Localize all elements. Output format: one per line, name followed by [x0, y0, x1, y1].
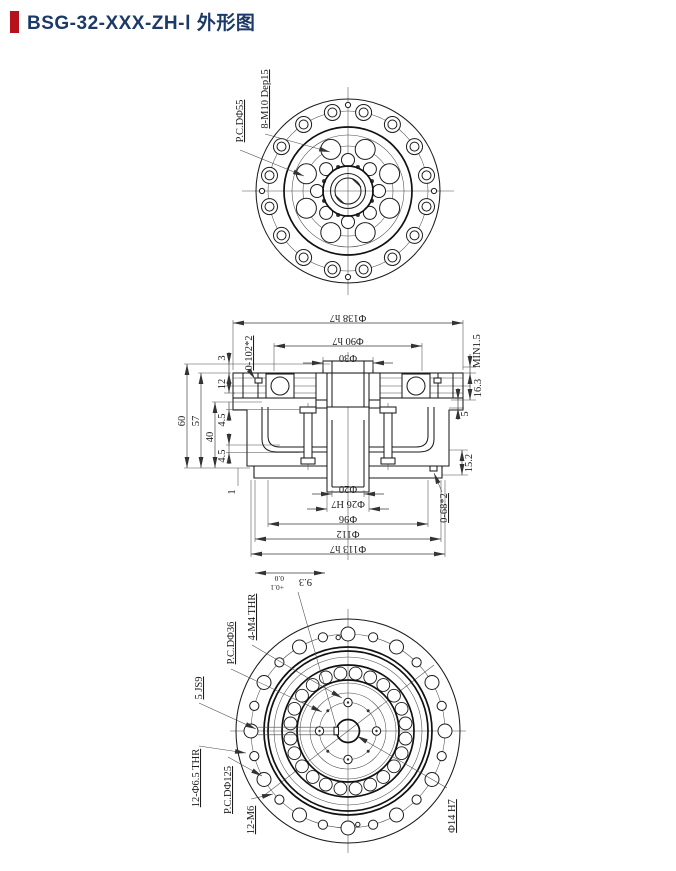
top-view: P.C.DΦ55 8-M10 Dep15	[235, 69, 454, 295]
bottom-view: 9.3 +0.1 0.0 4-M4 THR P.C.DΦ36 5 JS9 12-…	[191, 573, 466, 853]
label-12m6: 12-M6	[246, 806, 257, 835]
dim-57: 57	[191, 416, 202, 427]
dim-12: 12	[217, 379, 228, 390]
section-view: Φ138 h7 Φ90 h7 Φ30 0-102*2 MIN1.5 16.3 5…	[177, 312, 484, 560]
cad-drawing: P.C.DΦ55 8-M10 Dep15	[0, 0, 676, 871]
dim-dia96: Φ96	[339, 513, 357, 524]
keyway-depth-dim: 9.3 +0.1 0.0	[270, 574, 312, 592]
label-pcd36: P.C.DΦ36	[226, 622, 237, 665]
dim-45-upper: 4.5	[217, 413, 228, 426]
dim-dia20: Φ20	[339, 483, 357, 494]
svg-text:0.0: 0.0	[274, 574, 284, 583]
label-keyway-width: 5 JS9	[194, 676, 205, 699]
label-bore-dia14: Φ14 H7	[447, 799, 458, 833]
dim-dia112: Φ112	[336, 528, 359, 539]
page-title: BSG-32-XXX-ZH-Ⅰ 外形图	[27, 8, 255, 35]
label-12-thru: 12-Φ6.5 THR	[191, 749, 202, 807]
label-8-m10: 8-M10 Dep15	[260, 69, 271, 128]
dim-163: 16.3	[473, 379, 484, 397]
dim-dia138: Φ138 h7	[330, 312, 367, 323]
title-bar: BSG-32-XXX-ZH-Ⅰ 外形图	[10, 8, 255, 35]
dim-60: 60	[177, 416, 188, 427]
dim-dia113: Φ113 h7	[330, 543, 366, 554]
title-accent-bar	[10, 11, 19, 33]
svg-text:9.3: 9.3	[299, 576, 312, 587]
dim-40: 40	[205, 432, 216, 443]
dim-152: 15.2	[464, 454, 475, 472]
label-pcd55: P.C.DΦ55	[235, 100, 246, 143]
dim-5: 5	[460, 411, 471, 416]
label-pcd125: P.C.DΦ125	[223, 766, 234, 814]
keyway	[334, 727, 339, 735]
dim-45-lower: 4.5	[217, 449, 228, 462]
label-oring-top: 0-102*2	[244, 336, 255, 371]
dim-dia90: Φ90 h7	[332, 335, 363, 346]
dim-min15: MIN1.5	[472, 334, 483, 368]
dim-1: 1	[227, 489, 238, 494]
dim-3: 3	[217, 355, 228, 360]
label-oring-bottom: 0-68*2	[439, 493, 450, 523]
drawing-page: BSG-32-XXX-ZH-Ⅰ 外形图	[0, 0, 676, 871]
dim-dia26: Φ26 H7	[331, 498, 365, 509]
svg-text:+0.1: +0.1	[270, 583, 284, 592]
label-4m4: 4-M4 THR	[247, 594, 258, 641]
dim-dia30: Φ30	[339, 352, 357, 363]
